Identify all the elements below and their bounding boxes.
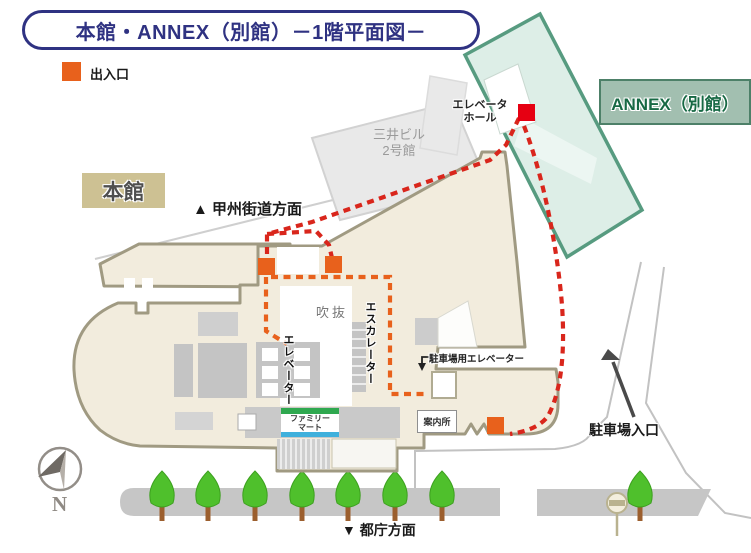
annex-elevator-hall-label: エレベータ ホール (441, 99, 519, 125)
room-block (198, 312, 238, 336)
floor-plan-page: 本館・ANNEX（別館）－1階平面図－ 出入口 ANNEX（別館） 本館 三井ビ… (0, 0, 751, 553)
exit-marker (325, 256, 342, 273)
honkan-label: 本館 (82, 173, 165, 208)
elevator-label: エレベーター (280, 334, 296, 418)
exit-legend-label: 出入口 (90, 64, 129, 83)
annex-exit-marker (518, 104, 535, 121)
exit-marker (258, 258, 275, 275)
parking-road-left-edge (591, 262, 641, 433)
room-block (174, 344, 193, 397)
mitsui-building-label: 三井ビル 2号館 (353, 127, 445, 160)
annex-label: ANNEX（別館） (599, 79, 751, 125)
escalator-label: エスカレーター (362, 301, 378, 399)
parking-elevator-box (432, 372, 456, 398)
tocho-direction-label: ▼ 都庁方面 (342, 520, 416, 540)
atrium-label: 吹抜 (316, 302, 348, 321)
compass-icon (38, 448, 81, 490)
compass-north-label: N (52, 492, 67, 517)
familymart-label: ファミリー マート (281, 414, 339, 432)
parking-entrance-arrow-icon (601, 349, 634, 417)
exit-legend-swatch (62, 62, 81, 81)
stairs-hatch (277, 439, 396, 469)
page-title-text: 本館・ANNEX（別館）－1階平面図－ (76, 16, 427, 45)
koshu-kaido-direction-label: ▲ 甲州街道方面 (193, 198, 302, 219)
information-desk-label: 案内所 (417, 410, 457, 433)
exit-marker (487, 417, 504, 434)
room-block (175, 412, 213, 430)
parking-elevator-label: 駐車場用エレベーター (429, 351, 524, 365)
page-title: 本館・ANNEX（別館）－1階平面図－ (22, 10, 480, 50)
small-room (238, 414, 256, 430)
entrance-bay (277, 247, 319, 274)
room-block (198, 343, 247, 398)
parking-entrance-label: 駐車場入口 (589, 420, 659, 440)
parking-road-right-edge (646, 267, 751, 518)
wing-notch (124, 278, 135, 289)
wing-notch (142, 278, 153, 289)
